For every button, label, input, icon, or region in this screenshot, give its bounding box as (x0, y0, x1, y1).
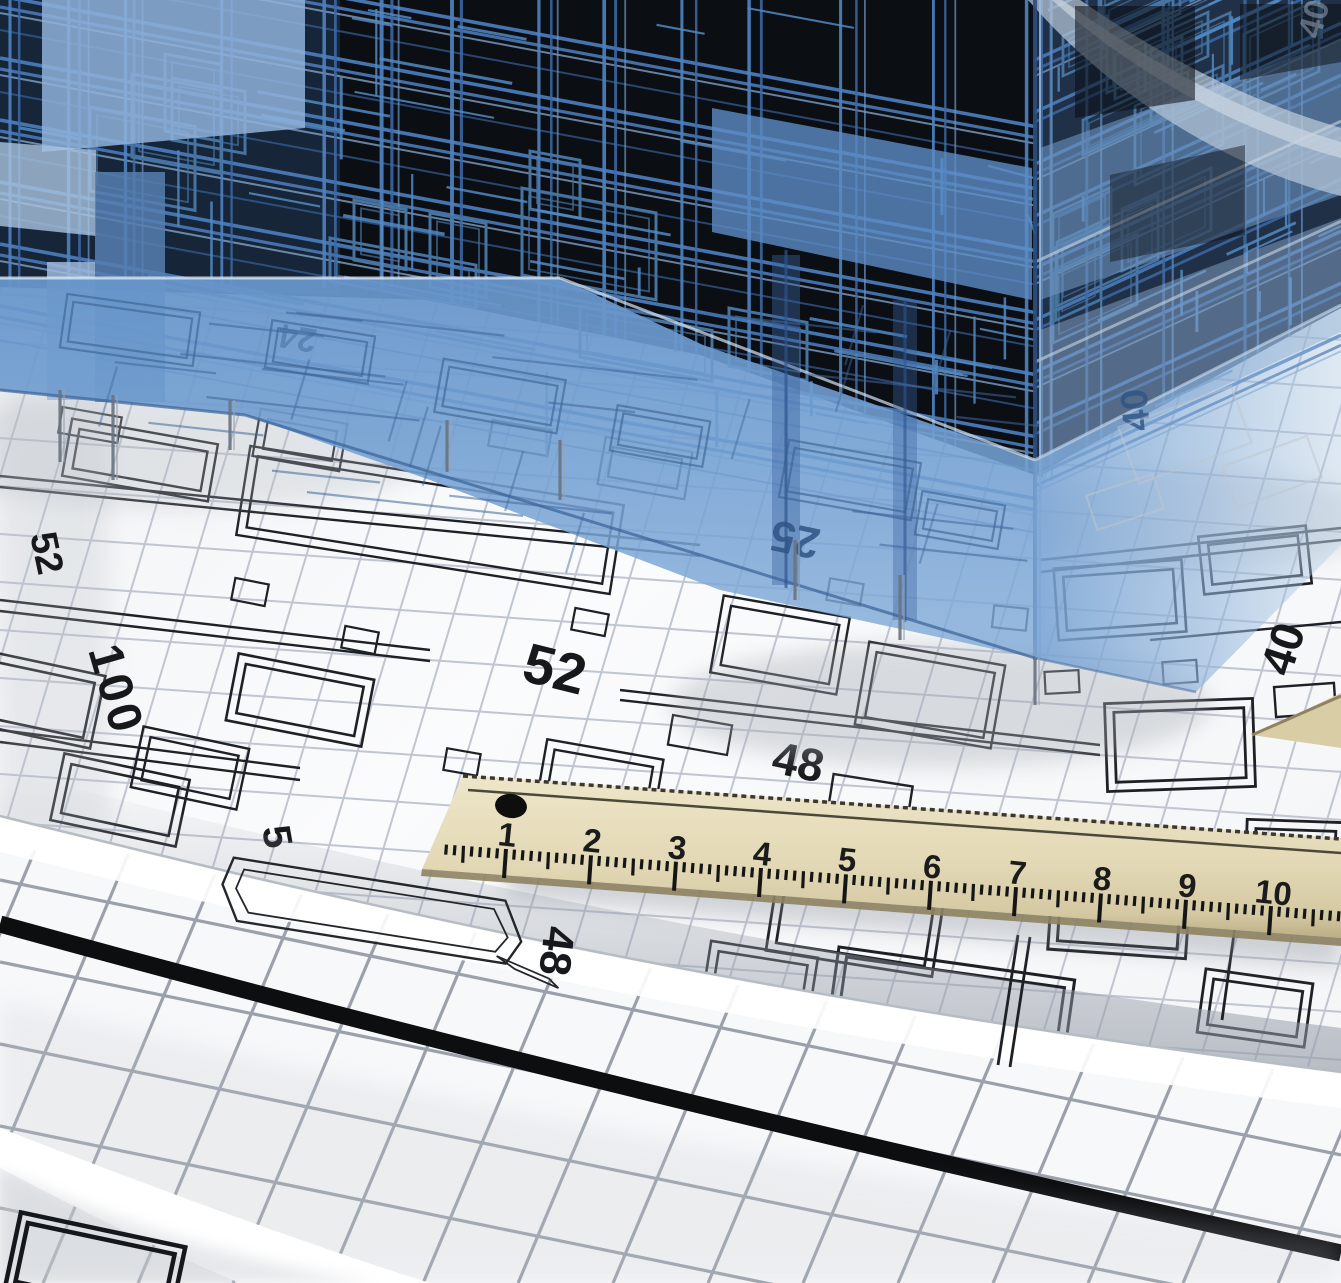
svg-text:48: 48 (529, 924, 584, 979)
svg-text:24: 24 (275, 316, 319, 360)
svg-text:7: 7 (1006, 853, 1028, 892)
svg-text:52: 52 (21, 528, 71, 578)
svg-text:9: 9 (1176, 866, 1198, 905)
svg-text:5: 5 (836, 840, 858, 879)
svg-text:2: 2 (581, 821, 603, 860)
svg-text:6: 6 (921, 847, 943, 886)
svg-text:1: 1 (496, 815, 518, 854)
svg-text:8: 8 (1091, 859, 1113, 898)
svg-text:10: 10 (1253, 872, 1293, 913)
svg-text:3: 3 (666, 828, 688, 867)
